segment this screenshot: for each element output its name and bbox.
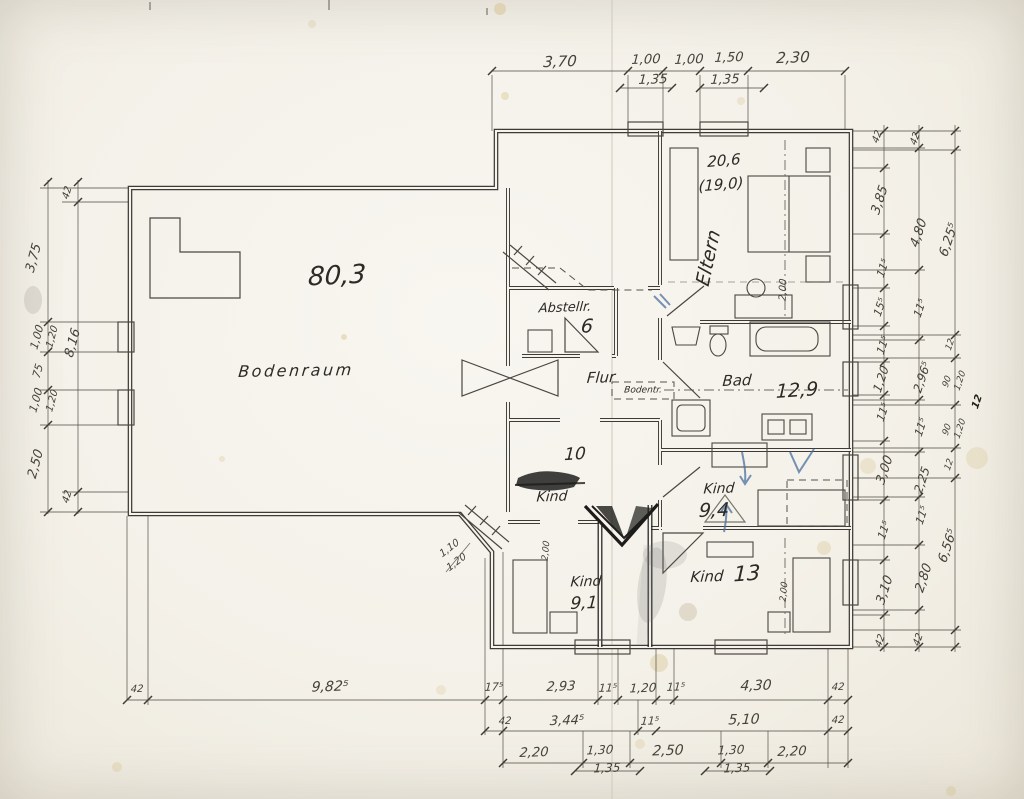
scribbled-out-word [516,471,580,490]
fixtures-bad [663,322,848,440]
furniture-kind-91 [513,560,577,633]
door-swing-abstellraum [565,318,598,352]
toilet [710,334,726,356]
chimney-structure [150,218,240,298]
door-swing-bad [663,362,700,398]
sink [672,327,700,345]
furniture-eltern [667,140,848,318]
blue-arrow-down [740,452,751,484]
bodenraum-features [150,218,240,298]
bed [758,490,845,526]
dimension-lines [40,67,961,775]
windows [118,122,858,654]
flur-features [462,360,674,399]
abstellraum-features [528,318,598,352]
nightstand [806,256,830,282]
floorplan-page: 3,701,001,351,001,501,352,30423,8511⁵15⁵… [0,0,1024,799]
outer-walls [130,131,851,647]
shelf [707,542,753,557]
wardrobe [670,148,698,260]
furniture-kind-94 [663,443,847,526]
bodentreppe-hatch [612,382,674,399]
desk [712,443,767,467]
paper-stains [24,3,988,796]
dresser [735,295,792,318]
scan-artifacts [24,0,988,799]
floorplan-drawing [0,0,1024,799]
blue-check-arrow [790,449,814,472]
bed [513,560,547,633]
blue-pen-arrows [654,294,814,532]
pencil-alterations [515,471,697,645]
door-swing-eltern [667,286,704,316]
vanity [762,414,812,440]
interior-walls [508,131,851,647]
nightstand [806,148,830,172]
door-swing-kind-94 [663,467,700,497]
bed [793,558,830,632]
